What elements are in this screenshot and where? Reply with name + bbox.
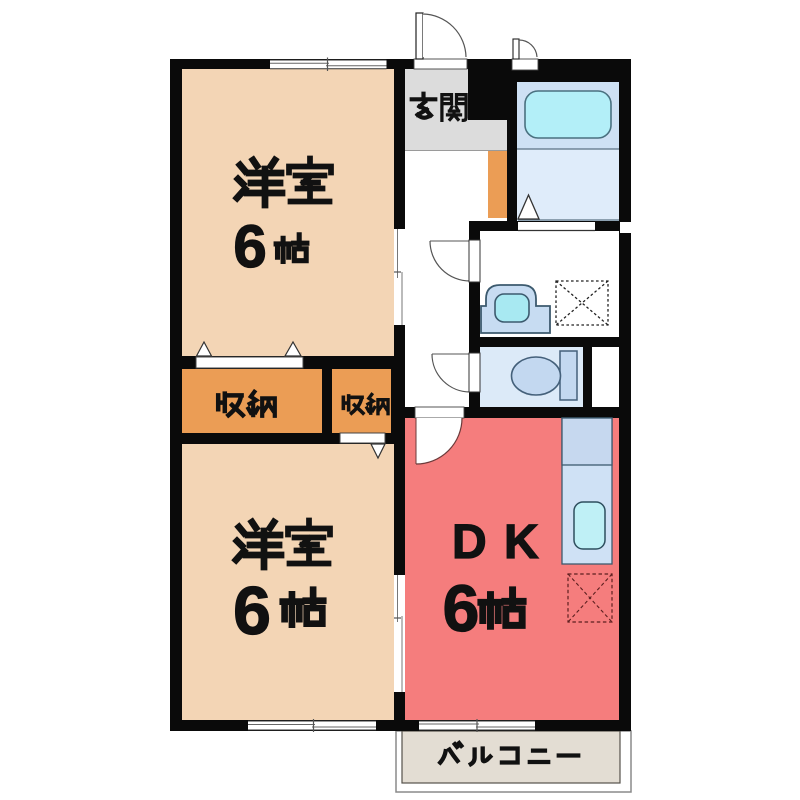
svg-text:K: K: [504, 516, 539, 569]
svg-text:6: 6: [443, 571, 480, 645]
svg-text:D: D: [452, 516, 487, 569]
svg-text:6: 6: [233, 573, 271, 649]
svg-text:6: 6: [233, 213, 266, 280]
